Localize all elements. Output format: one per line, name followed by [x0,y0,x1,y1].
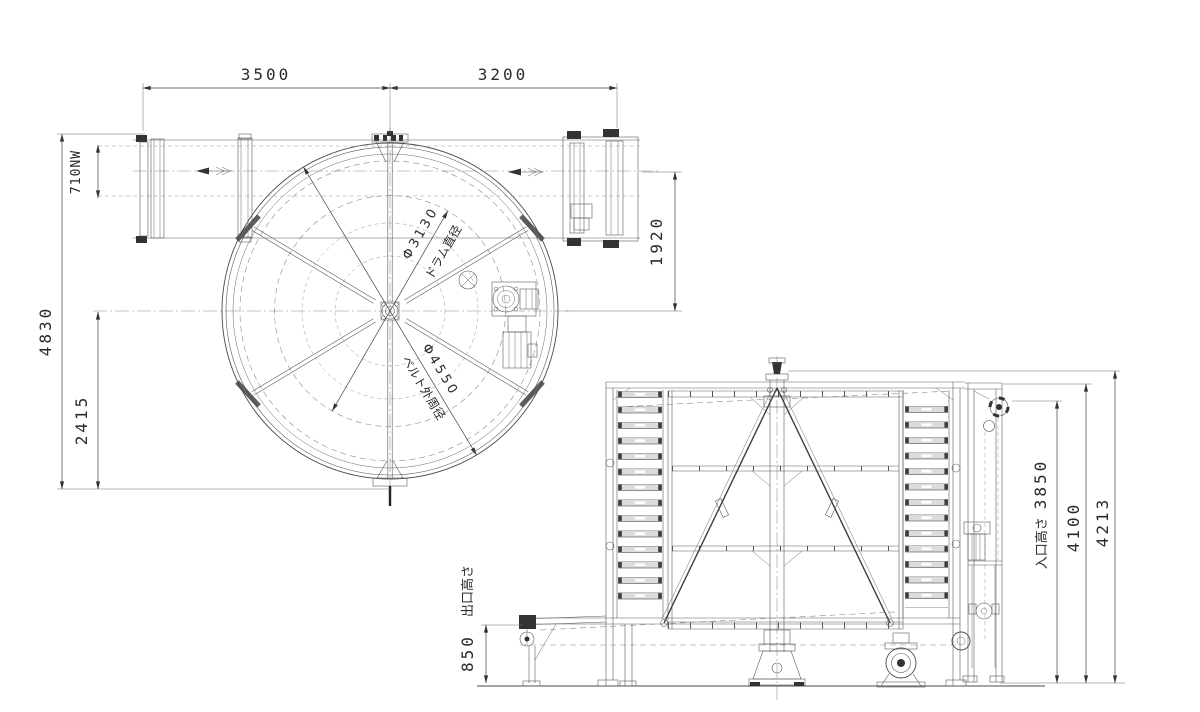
dim-2415: 2415 [72,395,91,446]
dim-850: 850 [458,634,477,672]
guide-pulley [984,421,995,432]
turnbuckle [825,499,838,518]
bearing-block [603,240,619,248]
gear-motor-plan [492,282,538,368]
dim-outlet-label: 出口高さ [460,565,476,617]
outfeed-head [519,615,536,629]
dim-710nw: 710NW [69,150,84,194]
infeed-conveyor [98,134,640,243]
tail-roller [140,142,148,236]
elevation-view: 入口高さ3850 4100 4213 出口高さ 850 [458,356,1125,700]
bearing-block [567,131,581,139]
dim-3200: 3200 [478,65,529,84]
left-slats [618,391,662,608]
central-mast [749,356,805,700]
turnbuckle [715,499,728,518]
left-dimensions: 4830 2415 710NW [36,134,392,489]
bearing-block [603,129,619,137]
bearing-block [567,238,581,246]
technical-drawing: Φ3130 ドラム直径 Φ4550 ベルト外周径 3500 3200 4830 … [0,0,1200,712]
left-slat-column [606,390,663,618]
dim-4830: 4830 [36,306,55,357]
plan-view: Φ3130 ドラム直径 Φ4550 ベルト外周径 3500 3200 4830 … [36,65,682,506]
snub-roller [606,141,623,235]
dim-4100: 4100 [1064,502,1083,553]
bearing-block [136,236,147,243]
rotor-frame [668,391,903,629]
top-dimensions: 3500 3200 [143,65,617,133]
right-slats [905,406,948,608]
drive-roller [570,143,584,233]
offset-dimension: 1920 [565,172,682,311]
dim-1920: 1920 [647,216,666,267]
dim-inlet-height: 入口高さ3850 [1031,459,1050,570]
takeup-column [952,383,1008,682]
bearing-block [136,135,147,142]
dim-3500: 3500 [241,65,292,84]
spiral-belt-paths [540,391,952,630]
bottom-drive-motor [877,633,925,687]
outfeed-conveyor [519,615,606,686]
discharge-conveyor-drive [508,129,638,248]
right-slat-column [903,390,960,618]
dim-4213: 4213 [1093,497,1112,548]
bottom-roller [952,632,970,650]
bearing-symbol [459,271,477,289]
flow-arrow-left [196,167,232,175]
mast-top-pin [772,362,782,374]
flow-arrow-right [508,168,544,176]
cad-drawing-sheet: Φ3130 ドラム直径 Φ4550 ベルト外周径 3500 3200 4830 … [0,0,1200,712]
takeup-motor [968,534,985,560]
lower-pulley [976,603,992,619]
